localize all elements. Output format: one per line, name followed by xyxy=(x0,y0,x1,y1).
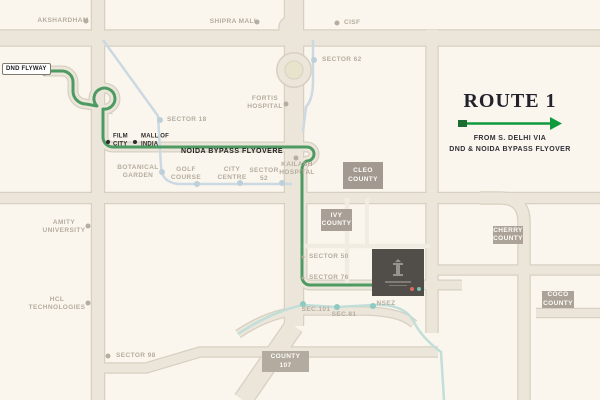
map-dot-poi-red xyxy=(410,287,414,291)
map-dot-poi-teal xyxy=(417,287,421,291)
map-label-fortis-hospital: FORTIS HOSPITAL xyxy=(247,95,283,111)
route-arrow-icon xyxy=(458,116,562,131)
route-title: ROUTE 1 xyxy=(440,90,580,113)
map-label-akshardham: AKSHARDHAM xyxy=(37,17,88,25)
map-label-film-city: FILM CITY xyxy=(113,134,128,149)
route-caption-line1: FROM S. DELHI VIA xyxy=(440,133,580,144)
map-dot-akshardham xyxy=(84,19,89,24)
county-box-cherry-county: CHERRY COUNTY xyxy=(493,226,523,244)
map-dot-sec-81 xyxy=(334,304,340,310)
dnd-flyway-badge: DND FLYWAY xyxy=(2,63,51,75)
map-dot-sector-18 xyxy=(157,117,163,123)
map-dot-mall-of-india xyxy=(133,140,137,144)
county-box-cleo-county: CLEO COUNTY xyxy=(343,162,383,189)
map-dot-cisf xyxy=(335,21,340,26)
route-caption-line2: DND & NOIDA BYPASS FLYOVER xyxy=(440,144,580,155)
map-label-sec-101: SEC.101 xyxy=(302,306,331,314)
map-label-nsez: NSEZ xyxy=(377,300,396,308)
map-dot-sector-98 xyxy=(106,354,111,359)
map-dot-sector-76 xyxy=(302,277,305,280)
map-dot-amity-university xyxy=(86,224,91,229)
county-box-county-107: COUNTY 107 xyxy=(262,351,309,372)
map-dot-nsez xyxy=(370,303,376,309)
map-label-sector-98: SECTOR 98 xyxy=(116,352,156,360)
map-label-cisf: CISF xyxy=(344,19,360,27)
labels-layer: AKSHARDHAMSHIPRA MALLCISFSECTOR 62FORTIS… xyxy=(0,0,600,400)
map-dot-film-city xyxy=(106,140,110,144)
map-label-sector-76: SECTOR 76 xyxy=(309,274,349,282)
map-label-sector-62: SECTOR 62 xyxy=(322,56,362,64)
map-label-amity-university: AMITY UNIVERSITY xyxy=(42,219,85,235)
map-dot-sector-52 xyxy=(279,180,285,186)
map-label-sector-52: SECTOR 52 xyxy=(249,167,278,183)
map-label-sector-50: SECTOR 50 xyxy=(309,253,349,261)
map-label-sector-18: SECTOR 18 xyxy=(167,116,207,124)
map-dot-hcl-technologies xyxy=(86,301,91,306)
map-label-city-centre: CITY CENTRE xyxy=(217,166,246,182)
map-dot-sector-62 xyxy=(311,57,317,63)
map-dot-city-centre xyxy=(237,180,243,186)
county-box-ivy-county: IVY COUNTY xyxy=(321,209,352,231)
map-label-shipra-mall: SHIPRA MALL xyxy=(210,18,259,26)
map-dot-shipra-mall xyxy=(255,20,260,25)
map-label-sec-81: SEC.81 xyxy=(332,311,357,319)
map-dot-fortis-hospital xyxy=(284,102,289,107)
map-dot-golf-course xyxy=(194,181,200,187)
flyover-road-label: NOIDA BYPASS FLYOVERE xyxy=(181,148,283,155)
map-label-kailash-hospital: KAILASH HOSPITAL xyxy=(279,161,315,177)
map-dot-kailash-hospital xyxy=(294,156,299,161)
map-label-mall-of-india: MALL OF INDIA xyxy=(141,134,169,149)
route-panel: ROUTE 1 FROM S. DELHI VIA DND & NOIDA BY… xyxy=(440,90,580,155)
map-dot-sector-50 xyxy=(302,256,305,259)
map-dot-botanical-garden xyxy=(159,169,165,175)
county-box-coco-county: COCO COUNTY xyxy=(542,291,574,308)
map-label-hcl-technologies: HCL TECHNOLOGIES xyxy=(29,296,86,312)
map-label-botanical-garden: BOTANICAL GARDEN xyxy=(117,164,158,180)
route-map: AKSHARDHAMSHIPRA MALLCISFSECTOR 62FORTIS… xyxy=(0,0,600,400)
map-dot-sec-101 xyxy=(300,301,306,307)
map-label-golf-course: GOLF COURSE xyxy=(171,166,201,182)
